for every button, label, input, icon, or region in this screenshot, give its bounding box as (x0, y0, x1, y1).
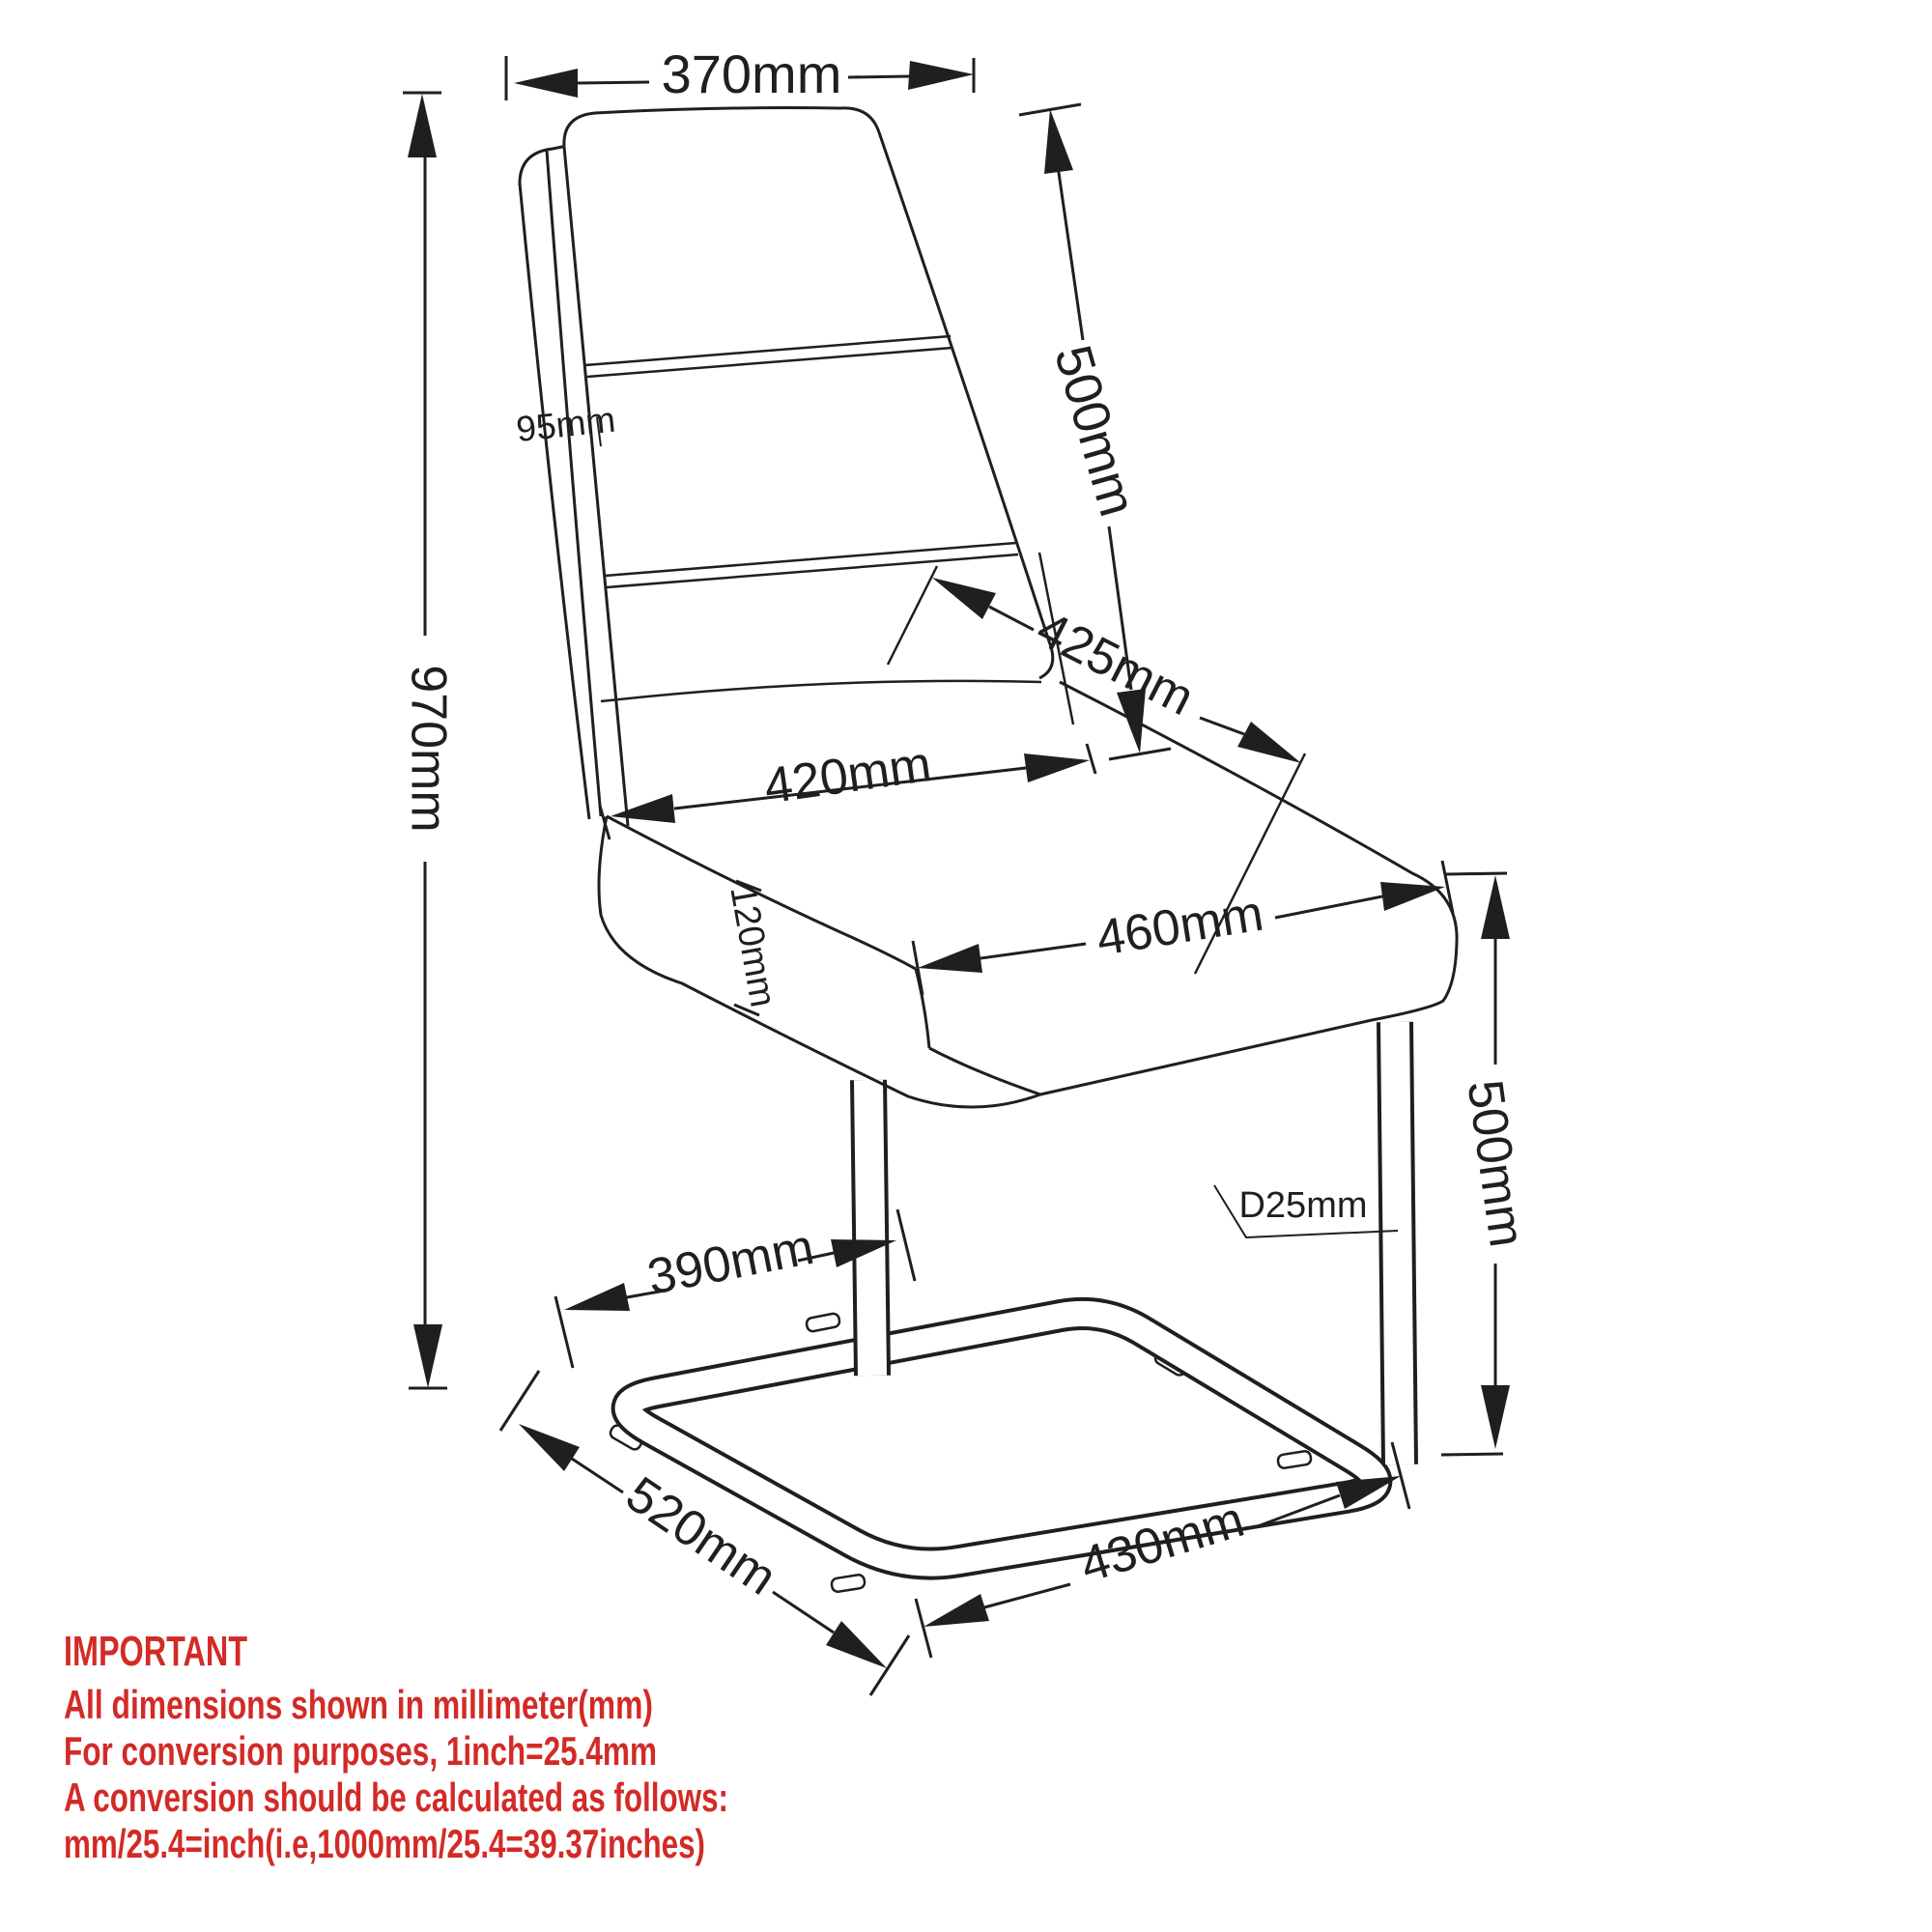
dim-arrowhead (514, 69, 578, 98)
dim-label-backrest-width: 370mm (662, 43, 842, 104)
drawing-svg: 370mm 500mm 425mm (0, 0, 1932, 1932)
notes-line: mm/25.4=inch(i.e,1000mm/25.4=39.37inches… (64, 1821, 705, 1866)
dim-line (848, 76, 910, 77)
dim-arrowhead (564, 1283, 630, 1311)
dimension-drawing: 370mm 500mm 425mm (0, 0, 1932, 1932)
notes-line: A conversion should be calculated as fol… (64, 1775, 728, 1820)
dim-line (578, 82, 649, 83)
dim-arrowhead (413, 1324, 442, 1388)
front-tube (868, 1080, 872, 1376)
dim-label-front-leg-offset: 390mm (643, 1219, 818, 1306)
backrest-front-panel (564, 108, 1073, 831)
dim-tick (897, 1209, 915, 1281)
dim-label-seat-height: 500mm (1456, 1077, 1535, 1251)
dim-tick (555, 1296, 573, 1368)
notes-heading: IMPORTANT (64, 1628, 247, 1675)
important-notes: IMPORTANT All dimensions shown in millim… (64, 1628, 728, 1866)
dim-tick (500, 1371, 539, 1431)
dim-arrowhead (1237, 722, 1301, 763)
dim-arrowhead (1481, 875, 1510, 939)
dim-arrowhead (826, 1621, 887, 1668)
dim-line (1056, 153, 1083, 340)
dim-line (572, 1459, 623, 1492)
notes-line: All dimensions shown in millimeter(mm) (64, 1682, 653, 1727)
chair-drawing (520, 108, 1457, 1593)
dim-tick (870, 1635, 909, 1695)
dim-tick (916, 1599, 931, 1658)
rear-tube (1395, 1022, 1400, 1464)
dim-backrest-width: 370mm (506, 43, 974, 104)
base-floor-loop (628, 1314, 1377, 1564)
dim-arrowhead (908, 61, 974, 90)
dim-overall-height: 970mm (400, 93, 456, 1388)
dim-arrowhead (923, 1594, 989, 1627)
dim-extension (1445, 873, 1507, 874)
dim-line (773, 1592, 834, 1633)
dim-line (1200, 718, 1244, 734)
dim-tick (1441, 1454, 1503, 1455)
dim-line (984, 1584, 1070, 1607)
dim-arrowhead (519, 1424, 580, 1471)
dim-label-tube-diameter: D25mm (1238, 1185, 1367, 1226)
dim-label-backrest-height: 500mm (1043, 339, 1147, 523)
dim-label-base-width: 430mm (1074, 1492, 1251, 1594)
dim-label-overall-height: 970mm (400, 665, 456, 832)
notes-line: For conversion purposes, 1inch=25.4mm (64, 1728, 657, 1774)
dim-arrowhead (408, 94, 437, 157)
dim-arrowhead (1481, 1385, 1510, 1449)
dim-tube-diameter: D25mm (1214, 1185, 1398, 1237)
